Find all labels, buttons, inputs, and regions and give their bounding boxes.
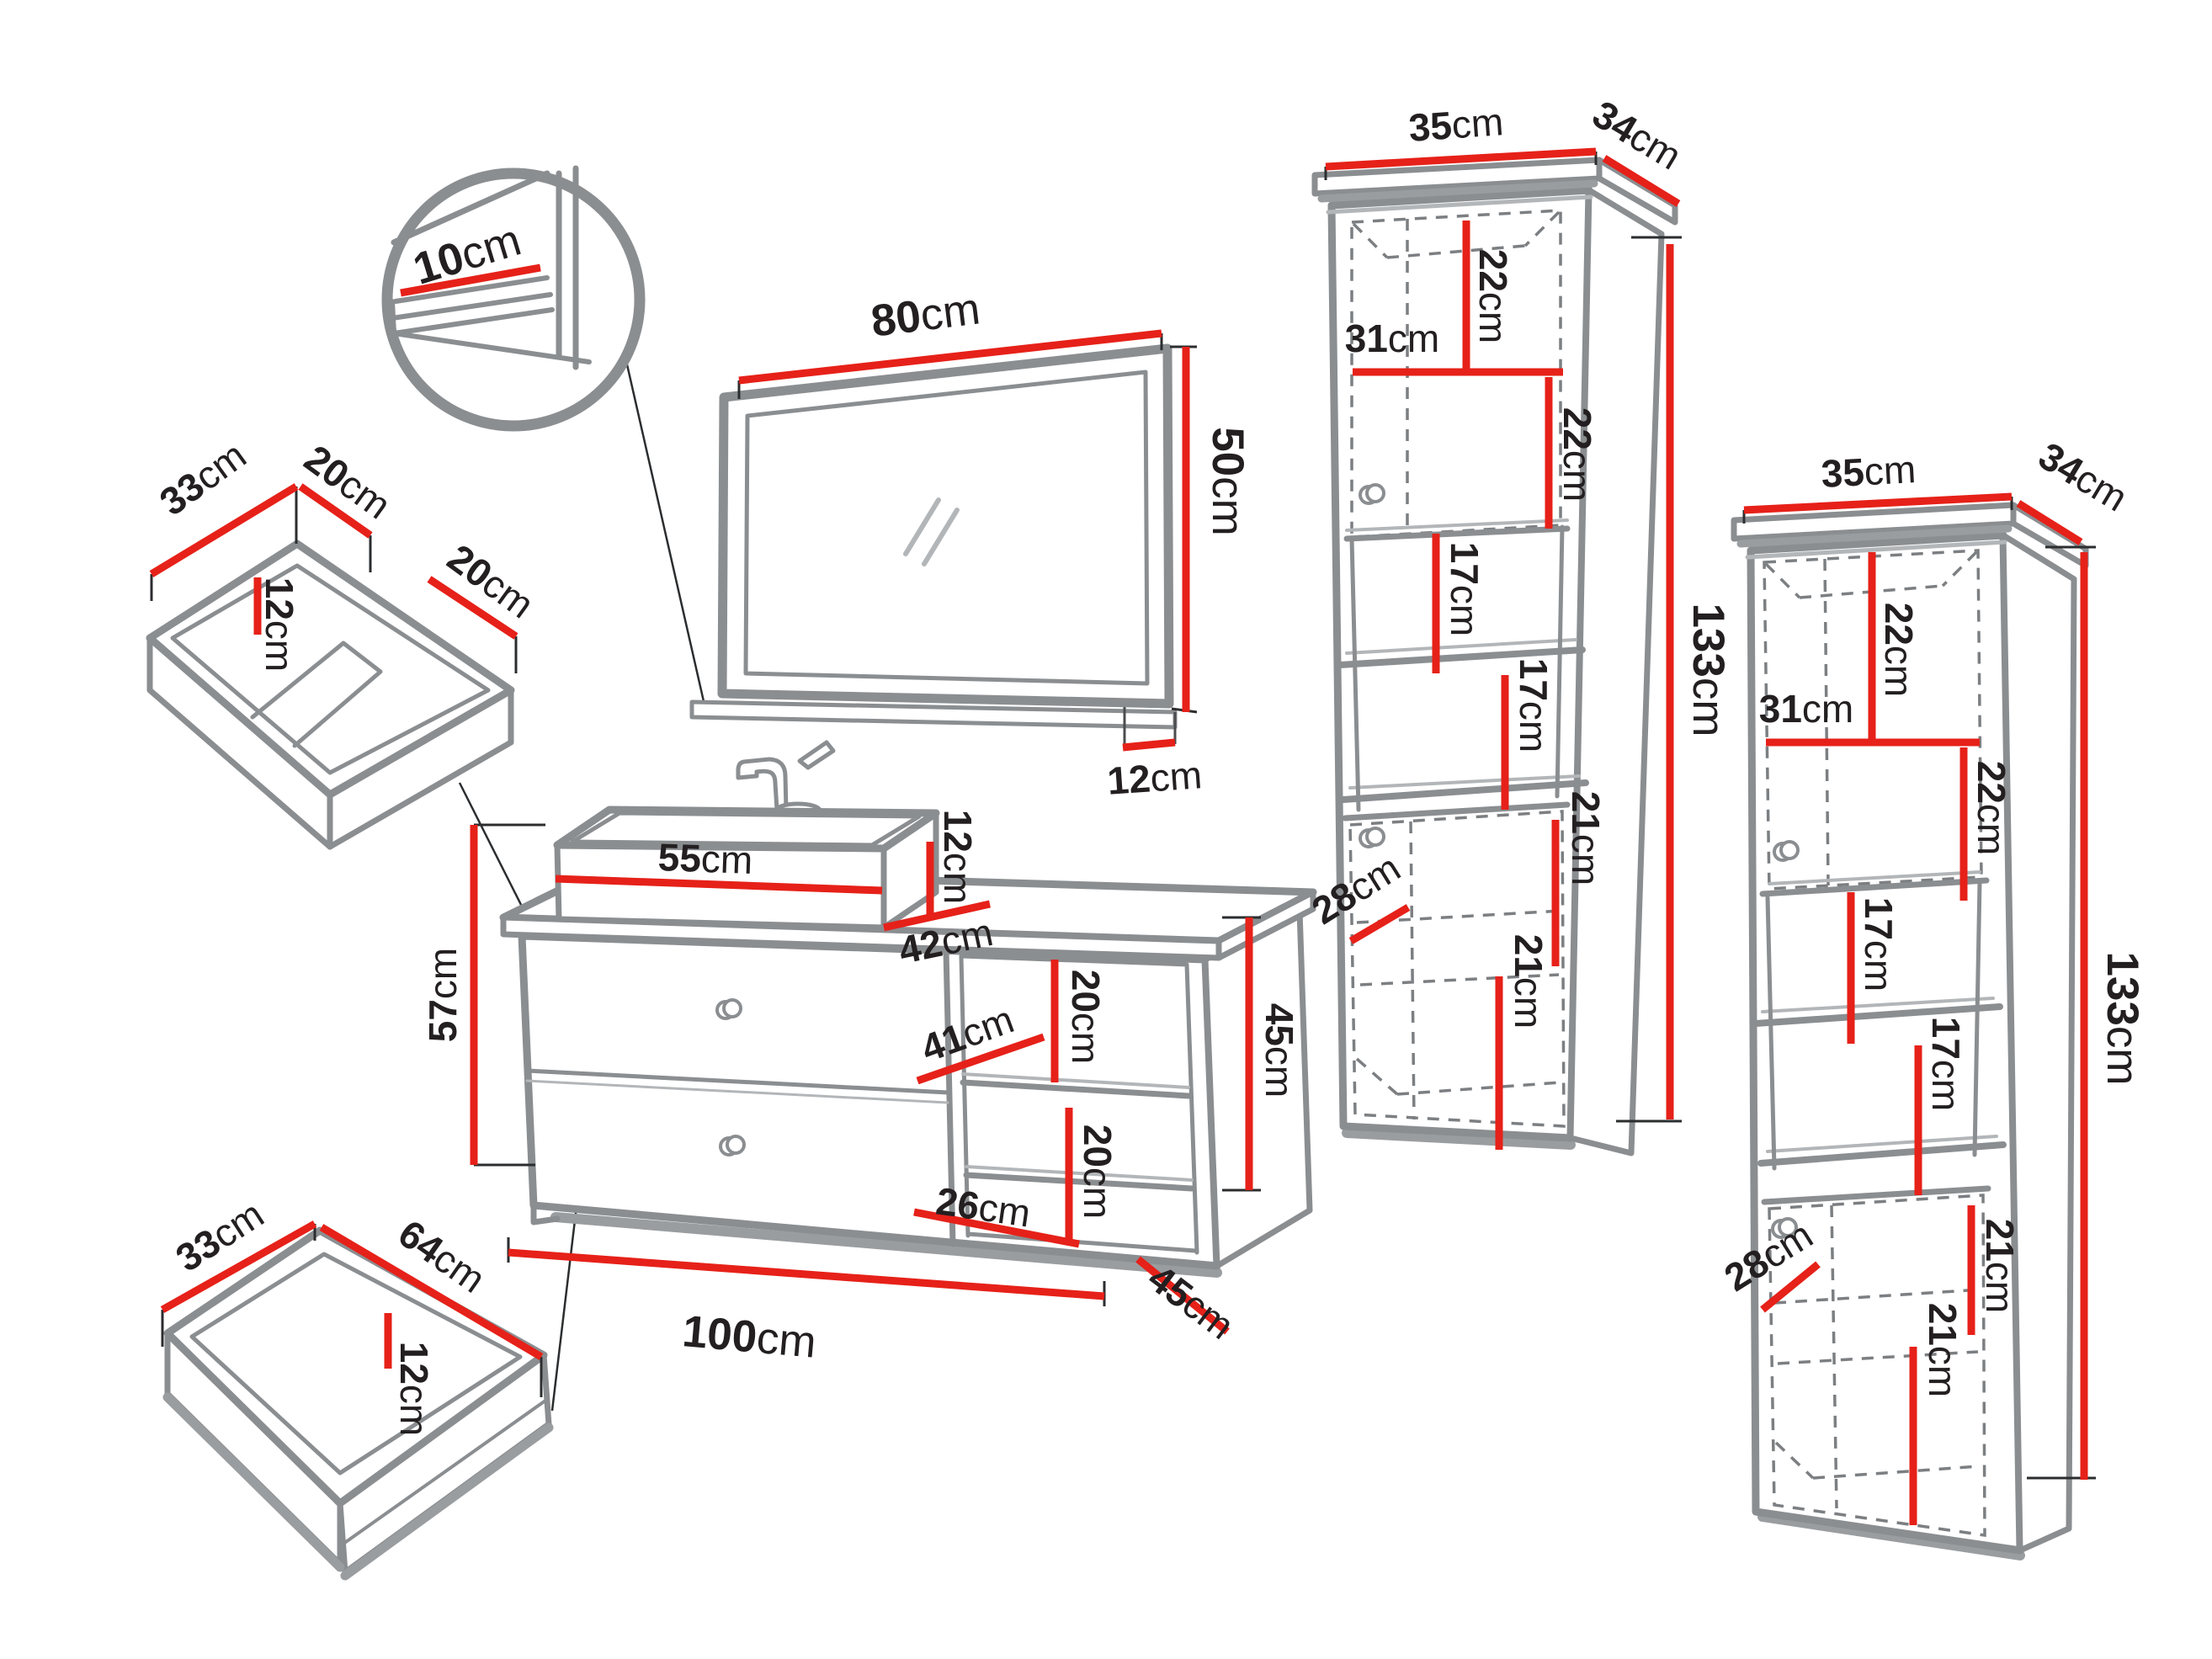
dim-label-cab2-height: 133cm — [2098, 951, 2147, 1085]
cab2-door1-knob — [1774, 842, 1798, 860]
tall-cabinet-right: 35cm 34cm 22cm 31cm 22cm 17cm 17cm 21cm … — [1716, 433, 2147, 1555]
mirror: 80cm 50cm 12cm — [692, 284, 1252, 803]
leader-detail-to-mirror-shelf — [625, 354, 705, 709]
dim-line-mirror-shelf-depth — [1123, 742, 1175, 747]
vanity-drawer-knob-bottom — [720, 1136, 744, 1155]
dim-label-cab2-depth: 34cm — [2031, 433, 2135, 520]
dim-label-mirror-height: 50cm — [1203, 427, 1252, 536]
knob-icon — [727, 1136, 744, 1153]
faucet-lever — [800, 742, 833, 768]
knob-icon — [1367, 485, 1384, 502]
dim-label-basin-width: 55cm — [657, 835, 753, 882]
dim-label-top-insert-width-right: 20cm — [439, 535, 542, 626]
dim-label-vanity-shelf-upper-height: 20cm — [1064, 970, 1108, 1065]
dim-label-mirror-width: 80cm — [869, 284, 983, 346]
dim-label-cab1-17-bottom: 17cm — [1512, 658, 1555, 753]
dim-label-cab2-17-top: 17cm — [1857, 897, 1901, 992]
washbasin — [557, 742, 936, 928]
vanity-cabinet: 55cm 12cm 42cm 57cm 20cm 41cm 20cm 26cm … — [421, 742, 1313, 1368]
dim-label-bottom-insert-depth: 33cm — [168, 1192, 272, 1280]
dim-label-cab2-17-bottom: 17cm — [1924, 1017, 1968, 1112]
dim-label-cab2-22-top: 22cm — [1877, 603, 1921, 698]
dim-label-cab1-17-top: 17cm — [1443, 542, 1486, 637]
dim-label-bottom-insert-height: 12cm — [392, 1342, 436, 1437]
dim-label-vanity-right-height: 45cm — [1258, 1003, 1301, 1098]
dim-label-top-insert-height: 12cm — [258, 577, 301, 673]
tall-cabinet-left: 35cm 34cm 22cm 31cm 22cm 17cm 17cm 21cm … — [1304, 92, 1733, 1153]
knob-icon — [724, 1000, 741, 1017]
dim-label-vanity-width: 100cm — [680, 1306, 818, 1368]
dim-label-cab1-22-top: 22cm — [1471, 249, 1515, 344]
dim-label-vanity-shelf-lower-height: 20cm — [1076, 1125, 1119, 1220]
cab1-door1-knob — [1360, 485, 1384, 503]
cab1-body-right-side — [1571, 190, 1662, 1153]
dim-label-mirror-shelf-depth: 12cm — [1106, 752, 1204, 803]
bathroom-furniture-dimension-diagram: 10cm 80cm 50cm 12cm 33cm 20cm 12cm 20cm — [0, 0, 2212, 1659]
dim-label-cab2-21-top: 21cm — [1978, 1219, 2022, 1314]
dim-label-cab1-height: 133cm — [1683, 603, 1733, 736]
knob-icon — [1781, 842, 1798, 859]
dim-label-cab2-22-mid: 22cm — [1970, 761, 2013, 856]
dimension-diagram-page: 10cm 80cm 50cm 12cm 33cm 20cm 12cm 20cm — [0, 0, 2212, 1659]
dim-label-cab1-21-top: 21cm — [1564, 791, 1608, 886]
cab1-door2-knob — [1360, 828, 1384, 847]
dim-label-cab2-31: 31cm — [1759, 687, 1854, 731]
dim-label-cab1-21-bottom: 21cm — [1507, 934, 1550, 1029]
dim-label-cab1-31: 31cm — [1345, 316, 1440, 360]
mirror-shelf-detail-circle: 10cm — [387, 168, 640, 426]
top-drawer-insert: 33cm 20cm 12cm 20cm — [150, 433, 542, 847]
dim-label-basin-height: 12cm — [936, 810, 980, 905]
vanity-drawer-knob-top — [717, 1000, 741, 1018]
faucet-icon — [738, 742, 833, 817]
faucet-body — [738, 759, 786, 810]
dim-label-cab1-width: 35cm — [1407, 99, 1505, 150]
dim-label-cab2-width: 35cm — [1820, 447, 1917, 496]
dim-label-cab2-21-bottom: 21cm — [1921, 1303, 1965, 1398]
dim-label-vanity-left-height: 57cm — [421, 948, 465, 1043]
dim-label-top-insert-width-left: 20cm — [296, 436, 399, 527]
bottom-drawer-insert: 33cm 64cm 12cm — [162, 1192, 549, 1576]
dim-label-cab1-22-mid: 22cm — [1555, 407, 1599, 502]
dim-label-top-insert-depth: 33cm — [152, 433, 254, 524]
knob-icon — [1367, 828, 1384, 845]
